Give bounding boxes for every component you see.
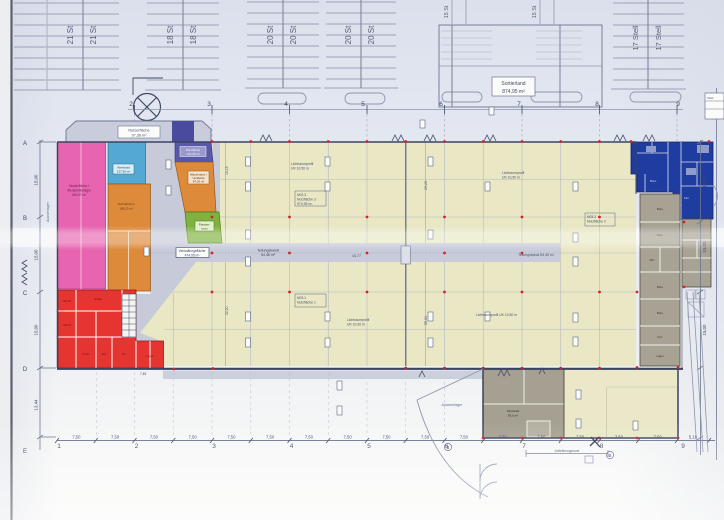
svg-text:3: 3	[207, 101, 211, 108]
svg-text:15,00: 15,00	[34, 249, 39, 261]
svg-text:3: 3	[212, 443, 216, 450]
svg-text:Musterfläche /: Musterfläche /	[69, 184, 89, 188]
svg-text:7,50: 7,50	[189, 435, 198, 440]
svg-text:Flur: Flur	[657, 335, 662, 339]
svg-text:974,95 m²: 974,95 m²	[297, 202, 313, 206]
svg-text:18 St: 18 St	[189, 25, 198, 44]
svg-text:102,46 m²: 102,46 m²	[186, 152, 200, 156]
svg-text:7: 7	[522, 443, 526, 450]
svg-text:97,03 m²: 97,03 m²	[193, 180, 204, 184]
svg-text:1: 1	[57, 443, 61, 450]
svg-text:7,50: 7,50	[266, 435, 275, 440]
svg-text:B: B	[609, 453, 612, 458]
svg-text:29,20: 29,20	[424, 181, 428, 190]
svg-text:7,50: 7,50	[460, 435, 469, 440]
svg-text:15 St: 15 St	[532, 5, 538, 18]
svg-text:8: 8	[595, 101, 599, 108]
svg-text:Technikraum: Technikraum	[117, 202, 135, 206]
svg-text:874,95 m²: 874,95 m²	[502, 89, 525, 95]
svg-text:Flur: Flur	[684, 196, 689, 200]
svg-text:Büro: Büro	[650, 179, 657, 183]
svg-text:UK 10,50 m: UK 10,50 m	[291, 167, 309, 171]
svg-text:5: 5	[367, 443, 371, 450]
svg-text:15,19: 15,19	[225, 166, 229, 175]
svg-text:N03.1: N03.1	[297, 296, 306, 300]
svg-text:20 St: 20 St	[344, 25, 353, 44]
svg-text:9: 9	[676, 101, 680, 108]
svg-text:Sozial: Sozial	[94, 297, 102, 301]
svg-text:E: E	[23, 449, 27, 455]
svg-text:7,50: 7,50	[111, 435, 120, 440]
svg-text:15,00: 15,00	[702, 324, 707, 336]
svg-text:Aussenlager: Aussenlager	[46, 201, 50, 222]
svg-text:55,01: 55,01	[424, 316, 428, 325]
svg-text:7,50: 7,50	[499, 435, 508, 440]
svg-text:7,50: 7,50	[421, 435, 430, 440]
svg-text:Tafel: Tafel	[707, 96, 714, 100]
svg-text:7,50: 7,50	[654, 435, 663, 440]
svg-text:A: A	[23, 141, 27, 147]
svg-text:18 St: 18 St	[166, 25, 175, 44]
svg-text:13,44: 13,44	[34, 399, 39, 411]
svg-text:22,20: 22,20	[225, 306, 229, 315]
svg-text:Anlieferungszone: Anlieferungszone	[555, 449, 580, 453]
svg-text:15,00: 15,00	[702, 176, 707, 188]
svg-text:Umkl.: Umkl.	[82, 352, 89, 356]
svg-text:5: 5	[361, 101, 365, 108]
svg-text:7: 7	[517, 101, 521, 108]
svg-text:7,50: 7,50	[305, 435, 314, 440]
svg-text:94,46 m²: 94,46 m²	[261, 253, 276, 257]
svg-text:WC: WC	[650, 258, 656, 262]
svg-text:95,6 m²: 95,6 m²	[508, 414, 518, 418]
svg-text:97,36 m²: 97,36 m²	[132, 134, 148, 138]
svg-text:15 St: 15 St	[444, 5, 450, 18]
svg-text:Werbemittellager: Werbemittellager	[67, 189, 92, 193]
svg-text:Lichtraumprofil UK 10,50 m: Lichtraumprofil UK 10,50 m	[476, 313, 517, 317]
svg-text:C: C	[23, 291, 28, 297]
svg-text:Büro: Büro	[657, 207, 664, 211]
svg-text:2: 2	[135, 443, 139, 450]
svg-text:Lager: Lager	[146, 354, 153, 358]
svg-text:17 Stell: 17 Stell	[631, 25, 640, 50]
svg-text:D: D	[23, 367, 28, 373]
svg-text:4: 4	[290, 443, 294, 450]
svg-text:WC-D: WC-D	[63, 299, 71, 303]
svg-text:7,50: 7,50	[537, 435, 546, 440]
svg-text:7,50: 7,50	[344, 435, 353, 440]
svg-text:WC-H: WC-H	[63, 323, 71, 327]
svg-text:Teilungskanal 84,45 m²: Teilungskanal 84,45 m²	[518, 253, 555, 257]
svg-text:20 St: 20 St	[266, 25, 275, 44]
svg-text:N03.2: N03.2	[587, 215, 596, 219]
svg-text:7,50: 7,50	[576, 435, 585, 440]
svg-text:188,13 m²: 188,13 m²	[119, 207, 133, 211]
svg-text:494,97 m²: 494,97 m²	[72, 193, 86, 197]
svg-text:20 St: 20 St	[289, 25, 298, 44]
svg-text:Büro: Büro	[657, 311, 664, 315]
svg-text:Lager: Lager	[656, 354, 664, 358]
svg-text:2: 2	[129, 101, 133, 108]
svg-text:B: B	[23, 216, 27, 222]
svg-text:N03.3: N03.3	[297, 193, 306, 197]
svg-text:20 St: 20 St	[367, 25, 376, 44]
svg-text:44,77: 44,77	[352, 254, 361, 258]
svg-text:Lichtraumprofil: Lichtraumprofil	[347, 318, 369, 322]
svg-text:UK 10,50 m: UK 10,50 m	[347, 323, 365, 327]
svg-text:17 Stell: 17 Stell	[654, 25, 663, 50]
svg-text:Werkstatt: Werkstatt	[507, 409, 520, 413]
svg-text:Nutzfläche 3: Nutzfläche 3	[297, 198, 316, 202]
svg-text:Nutzfläche 2: Nutzfläche 2	[587, 220, 606, 224]
svg-text:15,00: 15,00	[34, 174, 39, 186]
svg-text:Lichtraumprofil: Lichtraumprofil	[502, 171, 524, 175]
svg-text:6: 6	[439, 101, 443, 108]
svg-text:7,50: 7,50	[72, 435, 81, 440]
svg-text:15,00: 15,00	[34, 324, 39, 336]
svg-text:474,95 m²: 474,95 m²	[185, 254, 201, 258]
svg-text:9: 9	[681, 443, 685, 450]
svg-text:7,50: 7,50	[150, 435, 159, 440]
svg-text:Büro: Büro	[657, 285, 664, 289]
svg-text:7,45: 7,45	[140, 372, 146, 376]
svg-text:UK 10,50 m: UK 10,50 m	[502, 176, 520, 180]
svg-text:21 St: 21 St	[89, 25, 98, 44]
svg-text:Sortierland: Sortierland	[501, 81, 525, 87]
svg-text:WC: WC	[102, 352, 107, 356]
svg-text:Du.: Du.	[122, 352, 127, 356]
svg-text:Lichtraumprofil: Lichtraumprofil	[291, 162, 313, 166]
svg-text:Nutzerfläche: Nutzerfläche	[128, 129, 149, 133]
svg-text:137,56 m²: 137,56 m²	[117, 170, 131, 174]
svg-text:7,50: 7,50	[227, 435, 236, 440]
svg-text:21 St: 21 St	[66, 25, 75, 44]
svg-text:7,50: 7,50	[382, 435, 391, 440]
svg-text:4: 4	[284, 101, 288, 108]
svg-text:Nutzfläche 1: Nutzfläche 1	[297, 301, 316, 305]
svg-text:7,50: 7,50	[615, 435, 624, 440]
svg-text:B: B	[447, 445, 450, 450]
